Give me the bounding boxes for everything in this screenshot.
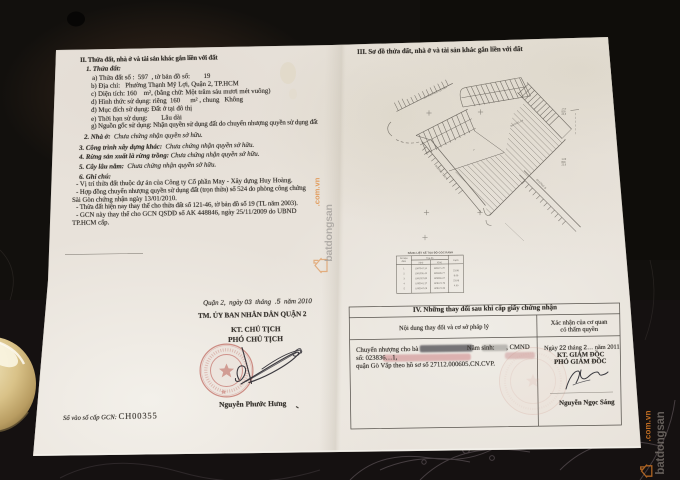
svg-text:4.00: 4.00 <box>454 285 459 287</box>
svg-text:Tọa độ: Tọa độ <box>426 257 434 260</box>
svg-text:23.08: 23.08 <box>453 270 459 272</box>
svg-text:609474.29: 609474.29 <box>434 288 445 290</box>
svg-text:23.08: 23.08 <box>453 280 459 282</box>
svg-text:1091027.83: 1091027.83 <box>415 278 428 280</box>
svg-text:609474.79: 609474.79 <box>434 283 445 285</box>
svg-text:609171.70: 609171.70 <box>434 268 445 270</box>
svg-text:1092041.27: 1092041.27 <box>415 283 428 285</box>
svg-text:609565.27: 609565.27 <box>434 278 445 280</box>
svg-text:1091035.43: 1091035.43 <box>415 273 428 275</box>
svg-text:23,8: 23,8 <box>562 165 567 167</box>
svg-text:609426.77: 609426.77 <box>434 273 445 275</box>
svg-text:Số hiệu: Số hiệu <box>400 257 409 260</box>
svg-text:23,8: 23,8 <box>562 114 567 116</box>
svg-text:Y(m): Y(m) <box>437 262 442 264</box>
svg-text:Cạnh: Cạnh <box>453 260 459 262</box>
svg-text:8.09: 8.09 <box>454 275 459 277</box>
svg-text:B09: B09 <box>562 162 567 164</box>
svg-text:đỉnh: đỉnh <box>402 260 407 263</box>
svg-text:B09: B09 <box>562 111 567 113</box>
svg-text:1-09: 1-09 <box>562 159 567 161</box>
svg-text:1092047.09: 1092047.09 <box>415 288 428 290</box>
svg-text:X(m): X(m) <box>418 262 423 264</box>
svg-text:1097047.19: 1097047.19 <box>415 268 428 270</box>
svg-text:1-09: 1-09 <box>562 109 567 111</box>
